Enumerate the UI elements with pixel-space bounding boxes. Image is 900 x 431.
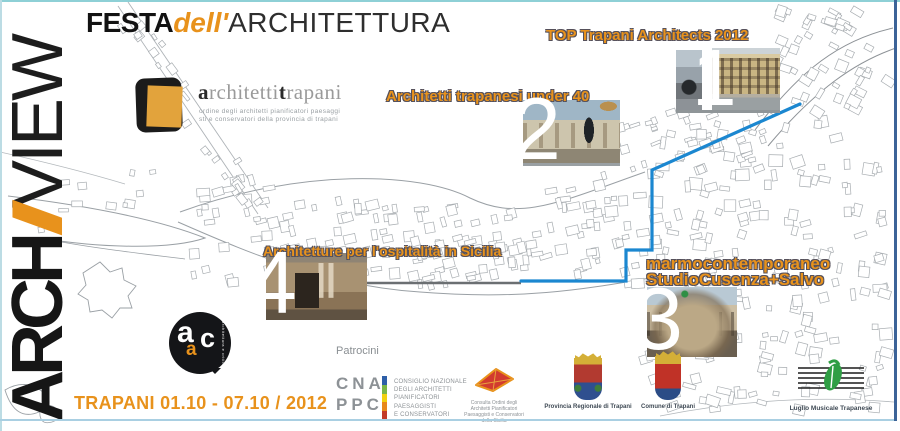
cnappc-bar-segment	[382, 402, 387, 411]
luglio-musicale-logo: Luglio Musicale Trapanese	[768, 358, 894, 412]
provincia-coat-of-arms-icon	[574, 358, 602, 400]
event-3-number: 3	[634, 275, 683, 363]
cnappc-bar-segment	[382, 394, 387, 403]
event-4-label: Architetture per l'ospitalità in Sicilia	[263, 243, 501, 259]
archiview-arch: ARCH	[0, 238, 78, 422]
title-dell: dell'	[173, 7, 228, 38]
comune-coat-of-arms-icon	[655, 356, 681, 400]
cnappc-bar-segment	[382, 385, 387, 394]
cnappc-caption-line: PIANIFICATORI	[394, 394, 467, 402]
title-festa: FESTA	[86, 7, 173, 38]
cnappc-caption-line: DEGLI ARCHITETTI	[394, 386, 467, 394]
frame-bottom	[0, 419, 896, 421]
logo-orange-square-icon	[146, 85, 182, 127]
provincia-caption: Provincia Regionale di Trapani	[540, 404, 636, 410]
event-4-number: 4	[248, 239, 297, 327]
cnappc-color-bar	[382, 376, 387, 420]
wordmark-rchitetti: rchitetti	[209, 80, 279, 104]
cnappc-bar-segment	[382, 376, 387, 385]
ordine-subtitle-line1: ordine degli architetti pianificatori pa…	[199, 108, 340, 116]
cnappc-logo: CNA PPC CONSIGLIO NAZIONALE DEGLI ARCHIT…	[336, 373, 466, 421]
aiac-letter-a-orange: a	[186, 339, 197, 361]
frame-left	[0, 0, 2, 431]
cnappc-caption: CONSIGLIO NAZIONALE DEGLI ARCHITETTI PIA…	[394, 378, 467, 419]
sicily-trinacria-icon	[472, 366, 516, 394]
consulta-sicilia-logo: Consulta Ordini degli Architetti Pianifi…	[458, 366, 530, 424]
patrocini-heading: Patrocini	[336, 345, 379, 357]
cnappc-caption-line: PAESAGGISTI	[394, 403, 467, 411]
luglio-caption: Luglio Musicale Trapanese	[768, 405, 894, 412]
page-title: FESTAdell'ARCHITETTURA	[86, 7, 450, 39]
music-staff-leaf-icon	[796, 358, 866, 396]
comune-caption: Comune di Trapani	[628, 404, 708, 410]
wordmark-rapani: rapani	[286, 80, 341, 104]
poster: ARCHIVIEW FESTAdell'ARCHITETTURA archite…	[0, 0, 900, 431]
event-dates: TRAPANI 01.10 - 07.10 / 2012	[74, 393, 327, 414]
comune-trapani-logo: Comune di Trapani	[628, 356, 708, 410]
ordine-subtitle-line2: sti e conservatori della provincia di tr…	[199, 116, 340, 124]
architetti-trapani-logo: architettitrapani ordine degli architett…	[134, 72, 364, 136]
event-2-number: 2	[512, 85, 561, 173]
event-1-number: 1	[692, 38, 737, 118]
aiac-letter-c: c	[200, 323, 215, 354]
wordmark-a: a	[198, 80, 209, 104]
ordine-subtitle: ordine degli architetti pianificatori pa…	[199, 108, 340, 124]
cnappc-caption-line: CONSIGLIO NAZIONALE	[394, 378, 467, 386]
archiview-view: VIEW	[0, 36, 78, 208]
title-architettura: ARCHITETTURA	[228, 7, 450, 38]
frame-top	[0, 0, 900, 2]
aiac-side-text: architettura e critica	[221, 321, 226, 367]
aiac-circle-logo: a a c architettura e critica	[169, 312, 231, 374]
cnappc-caption-line: E CONSERVATORI	[394, 411, 467, 419]
frame-right	[894, 0, 897, 421]
provincia-trapani-logo: Provincia Regionale di Trapani	[540, 358, 636, 410]
event-4-photo-doorway	[295, 273, 318, 308]
architetti-trapani-wordmark: architettitrapani	[198, 80, 342, 105]
archiview-vertical-logo: ARCHIVIEW	[8, 36, 68, 422]
